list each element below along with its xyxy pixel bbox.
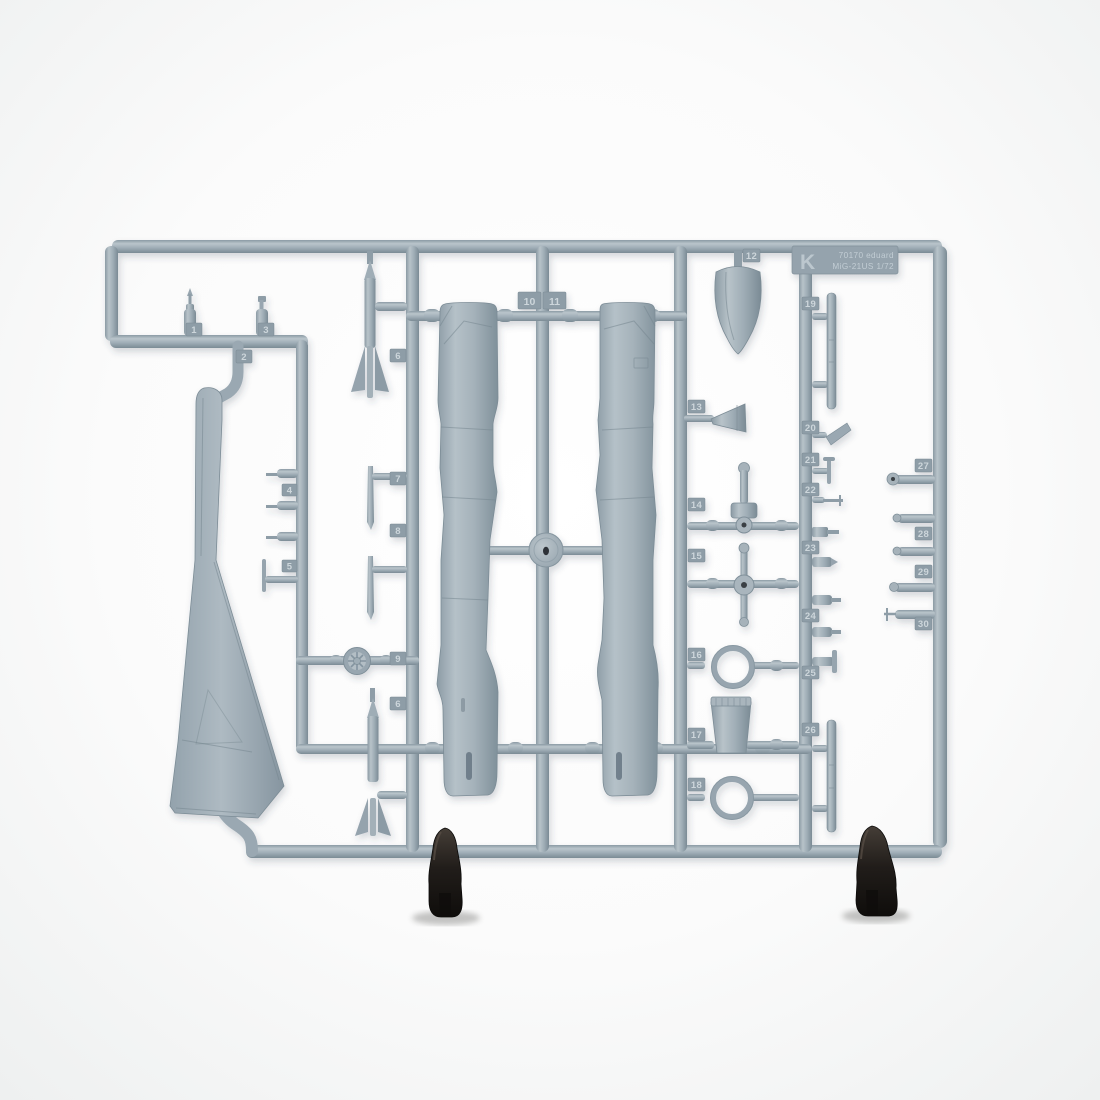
svg-text:1: 1 [191, 325, 197, 336]
sprue-letter: K [800, 251, 815, 274]
part-number-tag-22: 22 [802, 483, 819, 496]
pitot-part [266, 532, 298, 541]
frame-right-runner [933, 246, 947, 848]
svg-text:20: 20 [805, 423, 816, 434]
svg-text:19: 19 [805, 299, 816, 310]
sprue-photo: 1 3 2 4 5 6 7 8 9 6 10 11 12 13 14 15 16… [0, 0, 1100, 1100]
part-number-tag-30: 30 [915, 617, 932, 630]
strut-part [887, 473, 935, 485]
clip-notch [866, 890, 878, 915]
strut-part [890, 583, 936, 593]
sprue-frame-k: 1 3 2 4 5 6 7 8 9 6 10 11 12 13 14 15 16… [105, 240, 947, 858]
svg-text:27: 27 [918, 461, 929, 472]
part-number-tag-11: 11 [543, 292, 566, 309]
part-number-tag-23: 23 [802, 541, 819, 554]
fuselage-half-left [437, 303, 498, 797]
svg-text:24: 24 [805, 611, 817, 622]
svg-text:13: 13 [691, 402, 702, 413]
svg-text:3: 3 [263, 325, 269, 336]
strut-part [893, 514, 935, 523]
far-right-parts [884, 473, 935, 621]
nose-cone-part [715, 251, 761, 354]
part-number-tag-15: 15 [688, 549, 705, 562]
pitot-part [266, 501, 298, 510]
runner-gate [425, 742, 440, 754]
frame-step-runner [110, 335, 308, 348]
photo-backdrop: 1 3 2 4 5 6 7 8 9 6 10 11 12 13 14 15 16… [0, 0, 1100, 1100]
svg-text:28: 28 [918, 529, 929, 540]
support-clip-right [856, 826, 897, 916]
runner-gate [508, 742, 523, 754]
small-fitting-part [812, 527, 839, 537]
runner-gate [330, 655, 342, 665]
fuselage-slot [461, 698, 465, 712]
frame-left-upper-runner [105, 246, 118, 341]
sprue-kit-name: MiG-21US 1/72 [832, 262, 894, 271]
svg-text:5: 5 [287, 562, 293, 573]
part-number-tag-13: 13 [688, 400, 705, 413]
part-number-tag-16: 16 [688, 648, 705, 661]
part-number-tag-17: 17 [688, 728, 705, 741]
part-number-tag-7: 7 [390, 472, 406, 485]
fuselage-slot [616, 752, 622, 780]
part-number-tag-28: 28 [915, 527, 932, 540]
hub-disc-part [529, 533, 563, 567]
svg-text:12: 12 [746, 251, 757, 262]
svg-text:30: 30 [918, 619, 929, 630]
part-number-tag-14: 14 [688, 498, 705, 511]
fin-hanger-runner [219, 346, 238, 398]
missile-part-upper [351, 251, 407, 398]
small-fitting-part [812, 595, 841, 605]
sprue-kit-number: 70170 eduard [839, 251, 894, 260]
part-number-tag-25: 25 [802, 666, 819, 679]
part-number-tag-29: 29 [915, 565, 932, 578]
part-number-tag-8: 8 [390, 524, 406, 537]
svg-text:11: 11 [549, 296, 560, 308]
part-number-tag-missile2: 6 [390, 697, 406, 710]
frame-bottom-runner [246, 845, 942, 858]
svg-text:14: 14 [691, 500, 703, 511]
clip-notch [439, 893, 451, 916]
part-number-tag-6: 6 [390, 349, 406, 362]
svg-text:23: 23 [805, 543, 816, 554]
part-number-tag-19: 19 [802, 297, 819, 310]
part-number-tag-5: 5 [282, 560, 297, 573]
svg-text:26: 26 [805, 725, 816, 736]
part-number-tag-4: 4 [282, 484, 297, 497]
svg-text:29: 29 [918, 567, 929, 578]
part-number-tag-26: 26 [802, 723, 819, 736]
strut-part [893, 547, 935, 556]
right-column-parts [812, 293, 851, 832]
part-number-tag-3: 3 [258, 323, 274, 336]
support-clip-left [429, 828, 462, 917]
part-number-tag-18: 18 [688, 778, 705, 791]
part-number-tag-24: 24 [802, 609, 819, 622]
small-fitting-part [812, 557, 838, 567]
part-number-tag-10: 10 [518, 292, 541, 309]
part-number-tag-9: 9 [390, 652, 406, 665]
fuselage-half-right [596, 303, 658, 797]
svg-text:6: 6 [395, 351, 401, 362]
svg-text:2: 2 [241, 352, 247, 363]
part-number-tag-1: 1 [186, 323, 202, 336]
gear-door-part-lower [812, 720, 836, 832]
svg-text:4: 4 [287, 486, 293, 497]
gear-door-part-upper [812, 293, 836, 409]
spoked-wheel-part [344, 648, 371, 675]
svg-text:8: 8 [395, 526, 401, 537]
svg-text:22: 22 [805, 485, 816, 496]
part-number-tag-2: 2 [236, 350, 252, 363]
svg-text:10: 10 [524, 296, 536, 308]
runner-gate [497, 309, 513, 322]
runner-gate [562, 309, 578, 322]
svg-text:21: 21 [805, 455, 817, 466]
fin-spine-part [170, 388, 284, 818]
runner-gate [424, 309, 440, 322]
pitot-probe-part [812, 495, 843, 506]
exhaust-nozzle-part [687, 697, 799, 753]
svg-text:6: 6 [395, 699, 401, 710]
fuselage-slot [466, 752, 472, 780]
runner-v4 [674, 246, 687, 852]
sprue-id-plate: K 70170 eduard MiG-21US 1/72 [792, 246, 898, 274]
runner-v1 [296, 340, 308, 752]
svg-text:25: 25 [805, 668, 817, 679]
runner-gate [585, 742, 600, 754]
runner-v2 [406, 246, 419, 852]
pylon-part-lower [367, 556, 407, 620]
svg-text:16: 16 [691, 650, 702, 661]
svg-text:15: 15 [691, 551, 703, 562]
pitot-part [266, 469, 298, 478]
svg-text:9: 9 [395, 654, 401, 665]
part-number-tag-20: 20 [802, 421, 819, 434]
part-number-tag-12: 12 [743, 249, 760, 262]
part-number-tag-21: 21 [802, 453, 819, 466]
svg-text:18: 18 [691, 780, 702, 791]
part-number-tag-27: 27 [915, 459, 932, 472]
svg-text:17: 17 [691, 730, 702, 741]
small-fitting-part [812, 627, 841, 637]
svg-text:7: 7 [395, 474, 401, 485]
